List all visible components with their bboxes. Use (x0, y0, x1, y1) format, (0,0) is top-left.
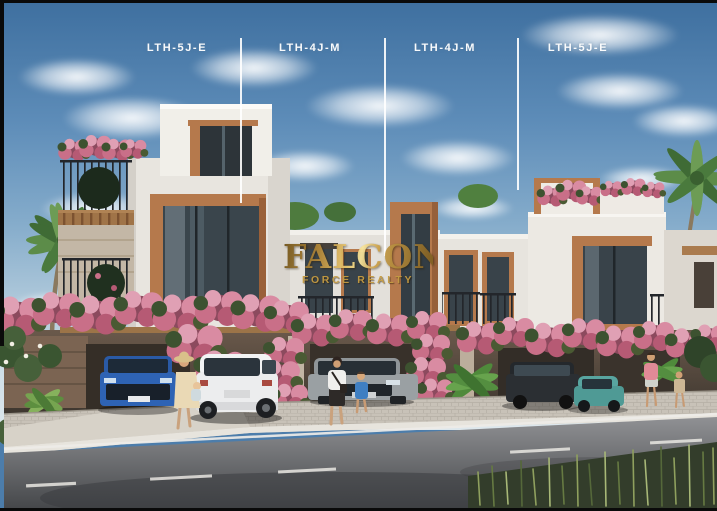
photo-edge-top (0, 0, 717, 3)
car-dark-suv (502, 362, 582, 411)
listing-photo: LTH-5J-E LTH-4J-M LTH-4J-M LTH-5J-E FALC… (0, 0, 717, 511)
unit-label: LTH-5J-E (147, 42, 207, 54)
unit-label: LTH-4J-M (414, 42, 476, 54)
watermark-brand: FALCON (283, 240, 433, 274)
watermark: FALCON FORCE REALTY (283, 240, 433, 286)
townhouse-right (528, 178, 717, 348)
divider-line (240, 38, 242, 203)
unit-label: LTH-5J-E (548, 42, 608, 54)
car-white-suv (190, 354, 282, 424)
divider-line (517, 38, 519, 190)
unit-label: LTH-4J-M (279, 42, 341, 54)
photo-edge-left (0, 0, 4, 346)
divider-line (384, 38, 386, 256)
